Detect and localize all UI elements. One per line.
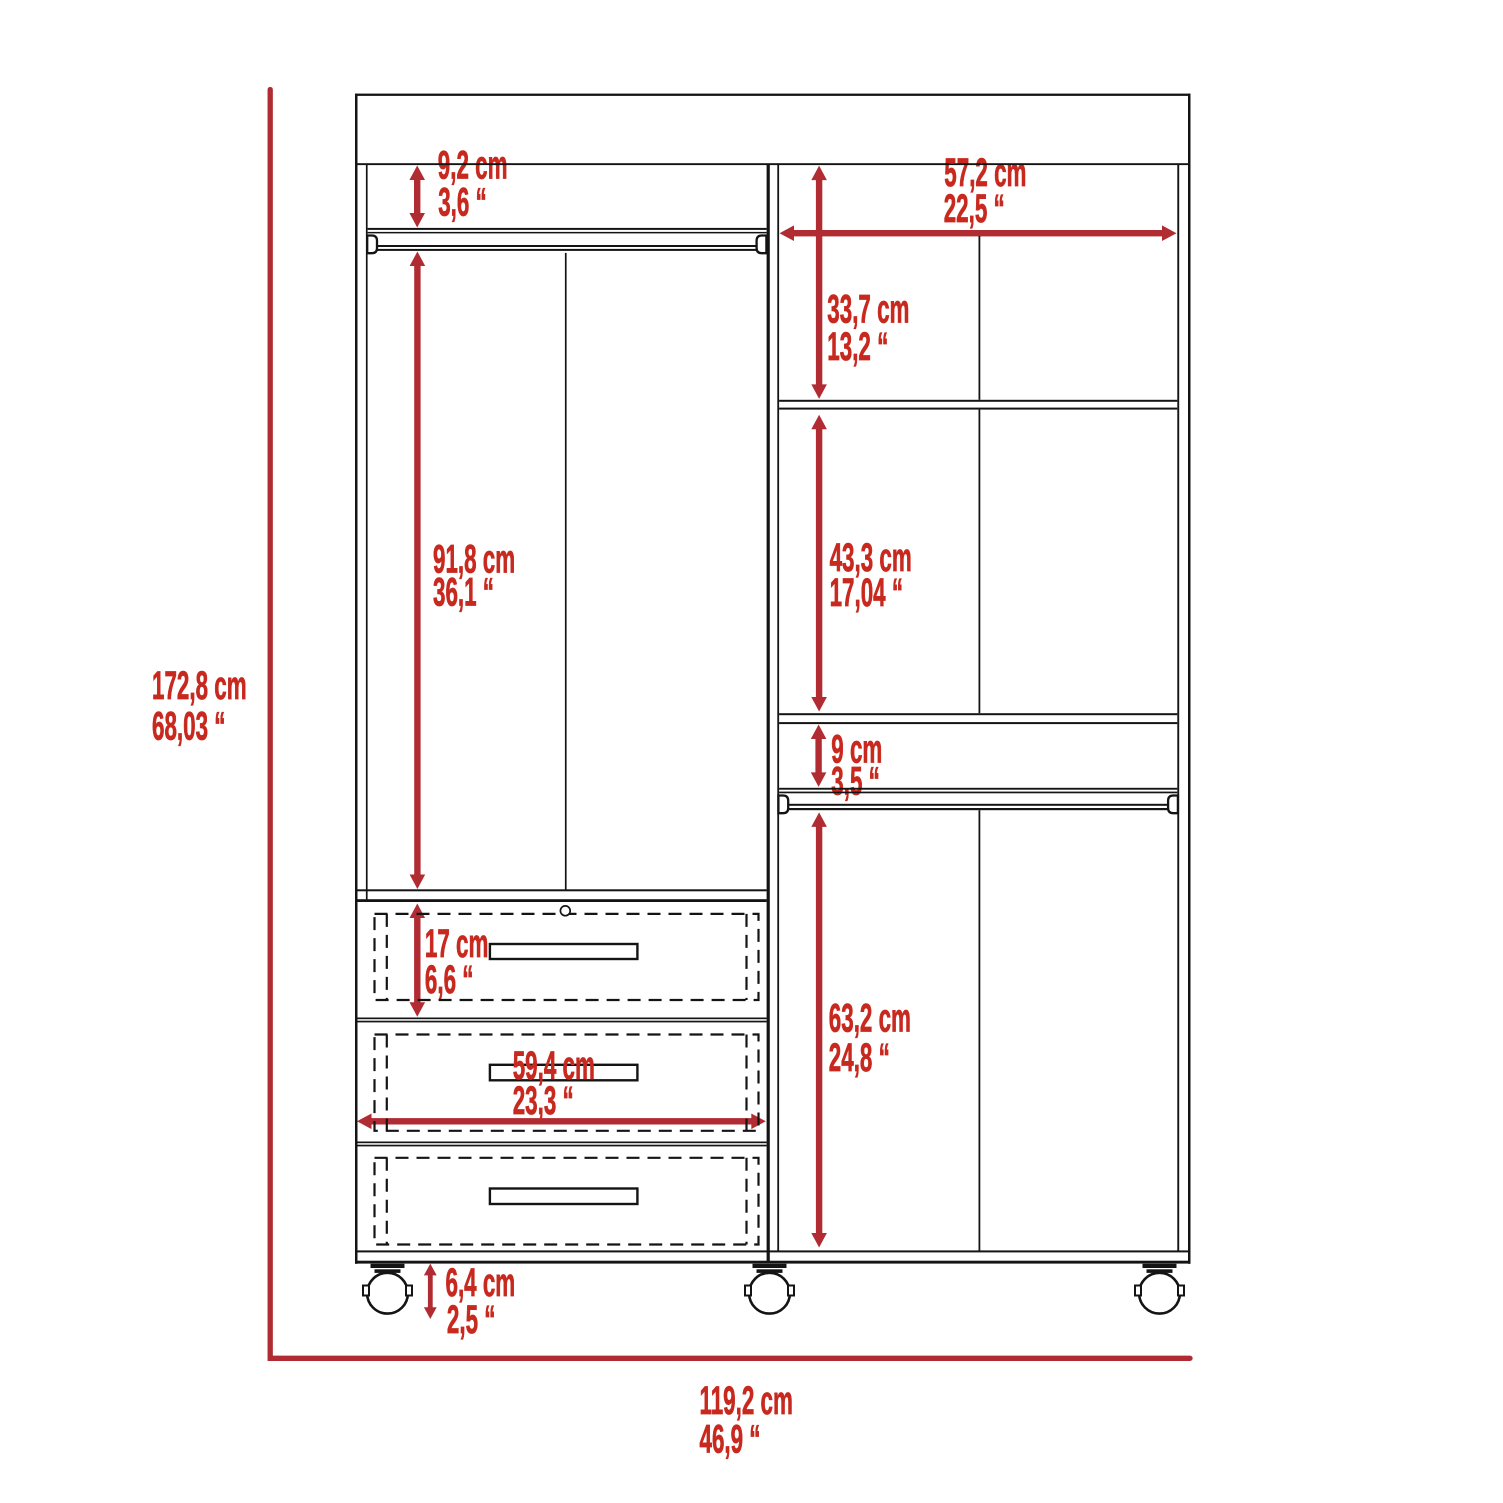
svg-text:6,6 “: 6,6 “: [425, 957, 474, 1001]
svg-text:17,04 “: 17,04 “: [830, 570, 903, 614]
svg-text:2,5 “: 2,5 “: [447, 1297, 496, 1341]
svg-text:3,5 “: 3,5 “: [831, 759, 880, 803]
svg-text:36,1 “: 36,1 “: [433, 570, 494, 614]
svg-text:13,2 “: 13,2 “: [827, 324, 888, 368]
svg-text:24,8 “: 24,8 “: [829, 1035, 890, 1079]
svg-text:3,6 “: 3,6 “: [438, 180, 487, 224]
svg-text:23,3 “: 23,3 “: [513, 1078, 574, 1122]
svg-text:172,8 cm: 172,8 cm: [152, 663, 247, 707]
svg-text:68,03 “: 68,03 “: [152, 704, 225, 748]
svg-text:63,2 cm: 63,2 cm: [829, 996, 911, 1040]
svg-text:46,9 “: 46,9 “: [700, 1417, 761, 1461]
svg-text:22,5 “: 22,5 “: [944, 186, 1005, 230]
